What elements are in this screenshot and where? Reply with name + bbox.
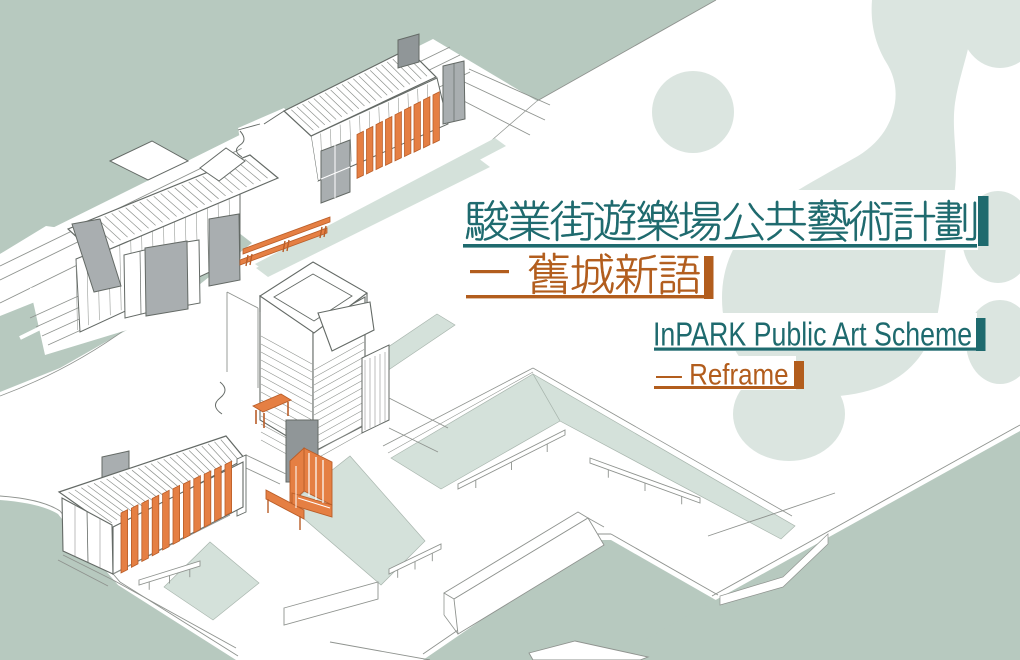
- svg-text:— Reframe: — Reframe: [656, 358, 789, 391]
- svg-text:InPARK Public Art Scheme: InPARK Public Art Scheme: [653, 317, 972, 353]
